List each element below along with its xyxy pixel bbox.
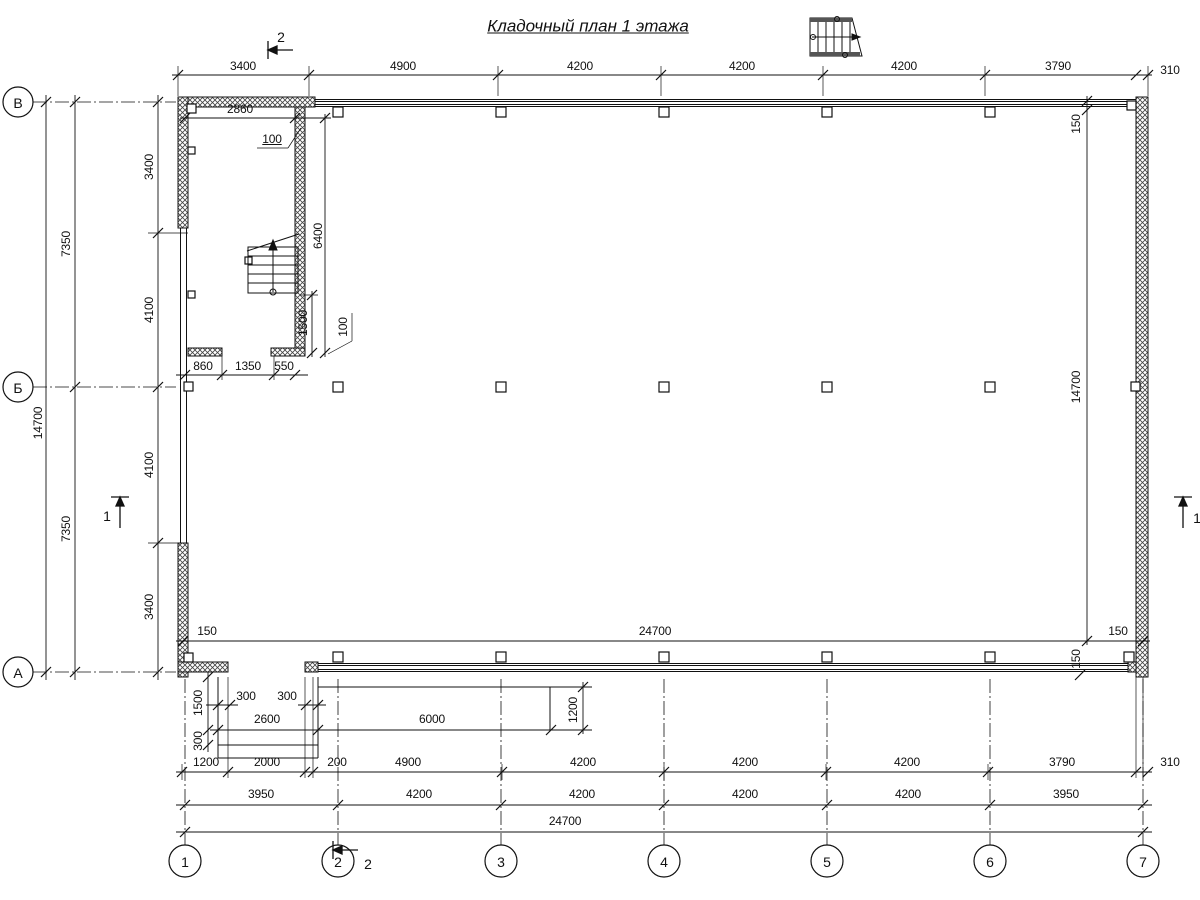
dim-r1-2000: 2000 [254,756,280,768]
dim-right-14700: 14700 [1070,371,1082,403]
dim-left-7350b: 7350 [60,516,72,542]
grid-row-v: В [13,96,22,110]
dim-left-7350a: 7350 [60,231,72,257]
dim-top-310: 310 [1160,64,1179,76]
dim-top-4200c: 4200 [891,60,917,72]
dim-ramp-1200: 1200 [567,697,579,723]
dim-left-4100a: 4100 [143,297,155,323]
dim-room-550: 550 [274,360,293,372]
floor-plan-sheet: Кладочный план 1 этажа 3400 4900 4200 42… [0,0,1200,900]
dim-r2-3950b: 3950 [1053,788,1079,800]
dim-r2-4200b: 4200 [569,788,595,800]
dim-ramp-6000: 6000 [419,713,445,725]
dim-r1-4200c: 4200 [894,756,920,768]
dim-r1-3790: 3790 [1049,756,1075,768]
dim-porch-2600: 2600 [254,713,280,725]
dim-room-1350: 1350 [235,360,261,372]
section-2-bottom-label: 2 [364,857,372,871]
grid-col-6: 6 [986,855,994,869]
dim-top-4200a: 4200 [567,60,593,72]
stair-flight [247,234,299,295]
dimension-lines [46,75,1152,832]
page-title: Кладочный план 1 этажа [487,18,689,35]
dim-porch-300a: 300 [236,690,255,702]
dim-left-3400a: 3400 [143,154,155,180]
grid-row-b: Б [13,381,22,395]
grid-col-1: 1 [181,855,189,869]
dim-inner-24700: 24700 [639,625,671,637]
grid-col-4: 4 [660,855,668,869]
dim-inner-150-left: 150 [197,625,216,637]
section-marks [111,41,1192,859]
section-1-right-label: 1 [1193,511,1200,525]
stair-symbol-icon [810,17,862,58]
dim-total-24700: 24700 [549,815,581,827]
section-1-left-label: 1 [103,509,111,523]
dim-room-1500: 1500 [297,310,309,336]
section-2-top-label: 2 [277,30,285,44]
dim-r2-4200a: 4200 [406,788,432,800]
dim-right-150-bottom: 150 [1070,649,1082,668]
dim-room-2860: 2860 [227,103,253,115]
dim-r2-3950a: 3950 [248,788,274,800]
dim-left-3400b: 3400 [143,594,155,620]
dim-r2-4200c: 4200 [732,788,758,800]
dim-left-4100b: 4100 [143,452,155,478]
plan-linework [0,0,1200,900]
dim-r1-310: 310 [1160,756,1179,768]
columns [184,101,1140,662]
dim-r1-1200: 1200 [193,756,219,768]
dim-room-6400: 6400 [312,223,324,249]
dim-room-860: 860 [193,360,212,372]
dim-room-100-top: 100 [262,133,281,145]
dim-room-100-right: 100 [337,317,349,336]
dim-top-4900: 4900 [390,60,416,72]
dim-r2-4200d: 4200 [895,788,921,800]
dim-porch-300c: 300 [192,731,204,750]
grid-col-7: 7 [1139,855,1147,869]
dim-r1-4200b: 4200 [732,756,758,768]
dim-inner-150-right: 150 [1108,625,1127,637]
dim-top-4200b: 4200 [729,60,755,72]
dim-top-3400: 3400 [230,60,256,72]
grid-row-a: А [13,666,22,680]
grid-col-3: 3 [497,855,505,869]
grid-col-5: 5 [823,855,831,869]
dim-left-14700: 14700 [32,407,44,439]
dim-porch-1500: 1500 [192,690,204,716]
dim-right-150-top: 150 [1070,114,1082,133]
dim-r1-200: 200 [327,756,346,768]
dim-r1-4200a: 4200 [570,756,596,768]
grid-col-2: 2 [334,855,342,869]
dim-porch-300b: 300 [277,690,296,702]
dim-r1-4900: 4900 [395,756,421,768]
dim-top-3790: 3790 [1045,60,1071,72]
